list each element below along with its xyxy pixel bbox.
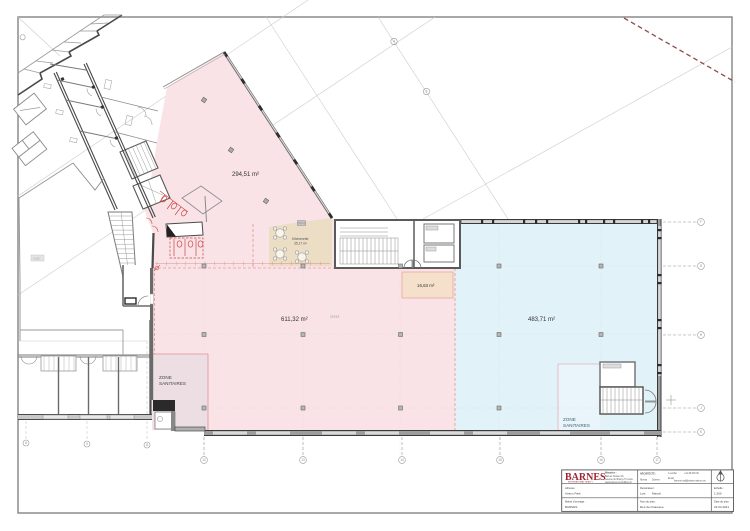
svg-text:Nom du plan :: Nom du plan : [640, 500, 656, 504]
svg-text:Date du plan: Date du plan [714, 500, 729, 504]
svg-text:F: F [700, 220, 702, 224]
svg-text:+41 28 003 00: +41 28 003 00 [684, 473, 699, 475]
svg-text:Dessinateur :: Dessinateur : [640, 486, 656, 490]
svg-text:17: 17 [655, 458, 659, 462]
svg-text:A verifier: A verifier [668, 472, 677, 475]
svg-text:Rez-de-chaussee: Rez-de-chaussee [640, 505, 664, 509]
svg-text:14: 14 [400, 458, 404, 462]
svg-text:4: 4 [393, 40, 395, 44]
svg-text:13: 13 [301, 458, 305, 462]
svg-text:Barnes Suisse SA: Barnes Suisse SA [605, 475, 624, 478]
svg-text:1:200: 1:200 [714, 492, 722, 496]
svg-text:ZONE: ZONE [159, 375, 172, 380]
svg-text:12: 12 [202, 458, 206, 462]
svg-text:Luis: Luis [640, 492, 646, 496]
svg-text:15: 15 [498, 458, 502, 462]
svg-text:9: 9 [86, 442, 88, 446]
svg-text:Maitre d'ouvrage :: Maitre d'ouvrage : [565, 500, 586, 504]
svg-text:BARNES: BARNES [565, 505, 577, 509]
svg-text:Adresse :: Adresse : [565, 486, 576, 490]
svg-text:23.04.2021: 23.04.2021 [714, 505, 729, 509]
svg-text:Avenue du Bourg 27 centre: Avenue du Bourg 27 centre [605, 478, 634, 481]
svg-text:ZONE: ZONE [563, 417, 576, 422]
svg-text:Echelle :: Echelle : [714, 486, 724, 490]
svg-text:Wanadoo :: Wanadoo : [605, 473, 617, 475]
svg-text:Kitchenette: Kitchenette [292, 237, 309, 241]
svg-text:35,17 m²: 35,17 m² [294, 242, 308, 246]
svg-text:barnes.mail@suisse-atrium.net: barnes.mail@suisse-atrium.net [674, 480, 706, 483]
svg-text:294,51 m²: 294,51 m² [232, 172, 259, 178]
svg-text:4,287: 4,287 [33, 257, 41, 261]
svg-text:ARCHITECTE :: ARCHITECTE : [640, 473, 656, 476]
svg-text:483,71 m²: 483,71 m² [528, 317, 555, 323]
svg-text:Atrium Park: Atrium Park [565, 492, 581, 496]
svg-text:SANITAIRES: SANITAIRES [159, 381, 186, 386]
svg-text:Marcel: Marcel [652, 492, 661, 496]
svg-text:8: 8 [25, 441, 27, 445]
svg-text:11: 11 [145, 443, 149, 447]
svg-text:16: 16 [599, 458, 603, 462]
svg-text:www.barnes-immobilier.ch: www.barnes-immobilier.ch [605, 481, 632, 484]
svg-text:Dossier: Dossier [652, 479, 660, 482]
svg-text:Niveau: Niveau [640, 480, 648, 482]
svg-text:INTERNATIONAL REALTY: INTERNATIONAL REALTY [568, 481, 594, 484]
svg-text:SANITAIRES: SANITAIRES [563, 423, 590, 428]
svg-text:3: 3 [426, 90, 428, 94]
svg-text:611,32 m²: 611,32 m² [281, 317, 308, 323]
svg-text:▮▮▮▮▮: ▮▮▮▮▮ [330, 315, 339, 319]
svg-text:16,63 m²: 16,63 m² [417, 283, 435, 288]
